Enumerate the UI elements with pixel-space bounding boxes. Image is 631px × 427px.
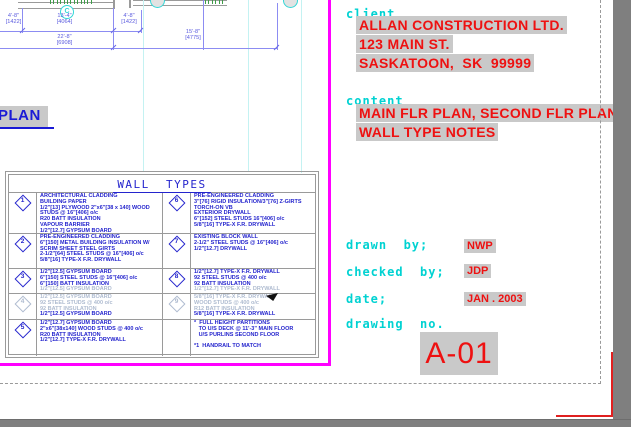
wall-type-notes-cell: * FULL HEIGHT PARTITIONS TO U/S DECK @ 1…	[191, 320, 317, 356]
wall-type-diamond-icon: 2	[16, 237, 29, 250]
wall-type-diamond-icon: 3	[16, 272, 29, 285]
wall-type-row: 51/2"[12.7] GYPSUM BOARD2"x6"[38x140] WO…	[9, 320, 315, 356]
wall-type-note-line: 1/2"[12.7] TYPE-X F.R. DRYWALL	[194, 287, 317, 293]
wall-types-header: WALL TYPES	[9, 175, 315, 193]
construction-line	[248, 0, 249, 172]
wall-type-note-line: 1/2"[12.5] GYPSUM BOARD	[40, 287, 162, 293]
wall-type-notes-cell: EXISTING BLOCK WALL2-1/2" STEEL STUDS @ …	[191, 234, 317, 268]
dimension-text: 22'-8"[6908]	[42, 34, 87, 47]
date-value[interactable]: JAN . 2003	[464, 289, 526, 307]
dimension-text: 15'-8"[4775]	[170, 29, 216, 42]
drawing-no-label: drawing no.	[346, 317, 445, 331]
wall-type-symbol-cell: 5	[9, 320, 37, 356]
wall-type-note-line: 5/8"[16] TYPE-X F.R. DRYWALL	[194, 312, 317, 318]
wall-type-row: 1ARCHITECTURAL CLADDINGBUILDING PAPER1/2…	[9, 193, 315, 234]
client-value[interactable]: ALLAN CONSTRUCTION LTD. 123 MAIN ST. SAS…	[356, 16, 567, 73]
wall-segment	[133, 0, 227, 6]
sheet-margin-right	[600, 0, 602, 384]
wall-type-note-line: 1/2"[12.5] GYPSUM BOARD	[40, 312, 162, 318]
sheet-border-bottom	[556, 415, 613, 417]
wall-type-symbol-cell: 2	[9, 234, 37, 268]
checked-by-label: checked by;	[346, 265, 445, 279]
wall-type-notes-cell: 1/2"[12.7] TYPE-X F.R. DRYWALL92 STEEL S…	[191, 269, 317, 293]
viewport-border-bottom[interactable]	[0, 363, 331, 366]
wall-type-notes-cell: PRE-ENGINEERED CLADDING3"[76] RIGID INSU…	[191, 193, 317, 233]
wall-type-symbol-cell	[163, 320, 191, 356]
wall-type-symbol-cell: 4	[9, 294, 37, 319]
wall-type-symbol-cell: 1	[9, 193, 37, 233]
wall-type-note-line: 5/8"[16] TYPE-X F.R. DRYWALL	[194, 223, 317, 229]
wall-type-symbol-cell: 8	[163, 269, 191, 293]
view-title: PLAN	[0, 107, 41, 124]
construction-line	[143, 0, 144, 172]
wall-type-diamond-icon: 4	[16, 297, 29, 310]
view-title-underline	[0, 127, 54, 129]
wall-type-symbol-cell: 7	[163, 234, 191, 268]
app-background-bottom	[0, 419, 631, 427]
wall-type-diamond-icon: 1	[16, 196, 29, 209]
dimension-text: 4'-8"[1422]	[0, 13, 27, 26]
drawing-sheet: C 4'-8"[1422]13'-4"[4064]4'-8"[1422]22'-…	[0, 0, 613, 419]
wall-type-note-line: 1/2"[12.7] TYPE-X F.R. DRYWALL	[40, 338, 162, 344]
cad-app-window: C 4'-8"[1422]13'-4"[4064]4'-8"[1422]22'-…	[0, 0, 631, 427]
wall-types-table: WALL TYPES 1ARCHITECTURAL CLADDINGBUILDI…	[8, 174, 316, 355]
sheet-margin-bottom	[0, 383, 601, 385]
drawn-by-label: drawn by;	[346, 238, 428, 252]
wall-type-note-line: 5/8"[16] TYPE-X F.R. DRYWALL	[40, 258, 162, 264]
content-value[interactable]: MAIN FLR PLAN, SECOND FLR PLAN, WALL TYP…	[356, 104, 625, 142]
checked-by-value[interactable]: JDP	[464, 261, 491, 279]
wall-type-diamond-icon: 7	[170, 237, 183, 250]
dimension-text: 4'-8"[1422]	[115, 13, 143, 26]
drawing-no-value: A-01	[425, 337, 492, 370]
extension-line	[277, 3, 278, 50]
wall-type-symbol-cell: 9	[163, 294, 191, 319]
wall-type-row: 2PRE-ENGINEERED CLADDING6"[150] METAL BU…	[9, 234, 315, 269]
wall-type-notes-cell: 5/8"[16] TYPE-X F.R. DRYWALLWOOD STUDS @…	[191, 294, 317, 319]
wall-type-note-line: 1/2"[12.7] GYPSUM BOARD	[40, 229, 162, 233]
wall-type-notes-cell: 1/2"[12.7] GYPSUM BOARD2"x6"[38x140] WOO…	[37, 320, 163, 356]
wall-end-cap	[129, 0, 131, 8]
app-background-right	[613, 0, 631, 427]
wall-type-symbol-cell: 3	[9, 269, 37, 293]
wall-type-notes-cell: PRE-ENGINEERED CLADDING6"[150] METAL BUI…	[37, 234, 163, 268]
wall-type-diamond-icon: 5	[16, 323, 29, 336]
wall-type-diamond-icon: 9	[170, 297, 183, 310]
extension-line	[203, 0, 204, 50]
wall-type-row: 31/2"[12.5] GYPSUM BOARD6"[150] STEEL ST…	[9, 269, 315, 294]
drawn-by-value[interactable]: NWP	[464, 236, 496, 254]
grid-bubble-partial	[283, 0, 298, 8]
date-label: date;	[346, 292, 387, 306]
wall-types-title: WALL TYPES	[113, 178, 210, 193]
grid-bubble-partial	[150, 0, 165, 8]
dimension-text: 13'-4"[4064]	[42, 13, 87, 26]
construction-line	[301, 0, 302, 173]
wall-type-note-line: *1 HANDRAIL TO MATCH	[194, 344, 317, 350]
dimension-line	[0, 48, 278, 49]
wall-type-notes-cell: ARCHITECTURAL CLADDINGBUILDING PAPER1/2"…	[37, 193, 163, 233]
wall-type-diamond-icon: 6	[170, 196, 183, 209]
dimension-line	[0, 31, 142, 32]
drawing-no-highlight[interactable]: A-01	[420, 332, 498, 375]
wall-type-note-line: 1/2"[12.7] DRYWALL	[194, 247, 317, 253]
wall-type-notes-cell: 1/2"[12.5] GYPSUM BOARD6"[150] STEEL STU…	[37, 269, 163, 293]
wall-type-symbol-cell: 6	[163, 193, 191, 233]
wall-type-notes-cell: 1/2"[12.5] GYPSUM BOARD92 STEEL STUDS @ …	[37, 294, 163, 319]
view-title-highlight[interactable]: PLAN	[0, 106, 48, 127]
wall-type-diamond-icon: 8	[170, 272, 183, 285]
viewport-border-right[interactable]	[328, 0, 331, 366]
